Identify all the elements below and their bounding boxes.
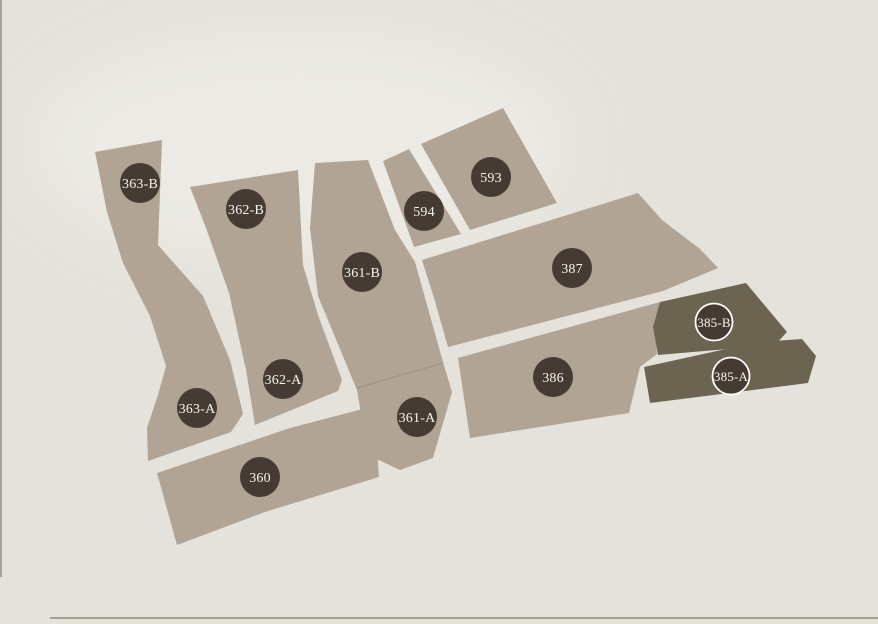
marker-362A[interactable]: 362-A bbox=[263, 359, 303, 399]
parcel-map-canvas: 363-B 362-B 361-B 594 593 387 385-B bbox=[0, 0, 878, 624]
marker-label-387: 387 bbox=[561, 262, 583, 277]
marker-386[interactable]: 386 bbox=[533, 357, 573, 397]
marker-361A[interactable]: 361-A bbox=[397, 397, 437, 437]
map-edge-line-bottom bbox=[50, 617, 878, 619]
marker-label-360: 360 bbox=[249, 471, 271, 486]
marker-label-594: 594 bbox=[413, 205, 435, 220]
marker-label-363A: 363-A bbox=[179, 402, 216, 417]
marker-593[interactable]: 593 bbox=[471, 157, 511, 197]
marker-label-362B: 362-B bbox=[228, 203, 264, 218]
marker-label-361B: 361-B bbox=[344, 266, 380, 281]
marker-385B-selected[interactable]: 385-B bbox=[696, 304, 733, 341]
marker-label-385B: 385-B bbox=[697, 315, 731, 330]
marker-360[interactable]: 360 bbox=[240, 457, 280, 497]
marker-label-386: 386 bbox=[542, 371, 564, 386]
parcel-map: 363-B 362-B 361-B 594 593 387 385-B bbox=[0, 0, 878, 624]
marker-label-361A: 361-A bbox=[399, 411, 436, 426]
marker-594[interactable]: 594 bbox=[404, 191, 444, 231]
marker-385A-selected[interactable]: 385-A bbox=[713, 358, 750, 395]
marker-label-363B: 363-B bbox=[122, 177, 158, 192]
marker-label-593: 593 bbox=[480, 171, 502, 186]
marker-361B[interactable]: 361-B bbox=[342, 252, 382, 292]
marker-363B[interactable]: 363-B bbox=[120, 163, 160, 203]
marker-387[interactable]: 387 bbox=[552, 248, 592, 288]
marker-label-385A: 385-A bbox=[714, 369, 749, 384]
map-edge-line-left bbox=[0, 0, 2, 577]
marker-363A[interactable]: 363-A bbox=[177, 388, 217, 428]
marker-label-362A: 362-A bbox=[265, 373, 302, 388]
marker-362B[interactable]: 362-B bbox=[226, 189, 266, 229]
